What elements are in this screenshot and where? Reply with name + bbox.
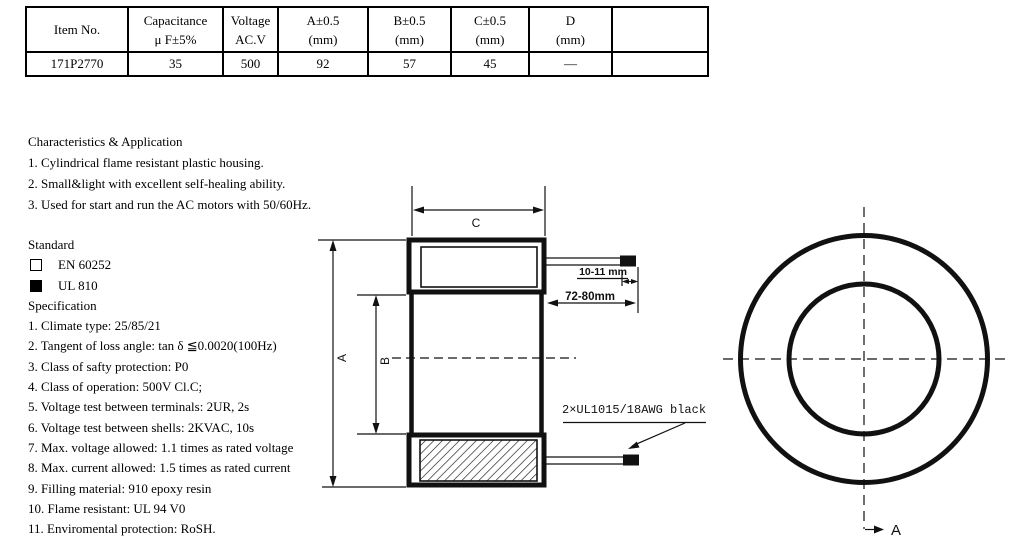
wire-spec-label: 2×UL1015/18AWG black [562,403,706,417]
dim-b-label: B [378,357,392,365]
arrowhead-right-icon [874,526,884,534]
lead-length-dim-label: 72-80mm [565,291,615,303]
arrowhead-down-icon [373,423,380,434]
arrowhead-down-icon [330,476,337,487]
dim-c-label: C [472,216,481,230]
arrowhead-right-icon [631,279,638,284]
arrowhead-left-icon [413,207,424,214]
arrowhead-right-icon [625,300,636,307]
wire-tip-bottom [623,455,639,466]
arrowhead-up-icon [330,240,337,251]
capacitor-bottom-cap-hatched [420,440,537,481]
dim-a-label: A [335,354,349,362]
technical-drawing: C A B 10-11 mm 72- [0,0,1033,541]
arrowhead-right-icon [533,207,544,214]
wire-spec-leader [632,423,685,446]
arrowhead-leader-icon [628,442,640,449]
section-view-label: A [891,522,901,539]
wire-tip-top [620,256,636,267]
arrowhead-left-icon [622,279,629,284]
arrowhead-left-icon [547,300,558,307]
capacitor-top-cap-inner [421,247,537,287]
tip-length-dim-label: 10-11 mm [579,266,627,278]
capacitor-datasheet-page: Item No. Capacitanceμ F±5% VoltageAC.V A… [0,0,1033,541]
arrowhead-up-icon [373,295,380,306]
